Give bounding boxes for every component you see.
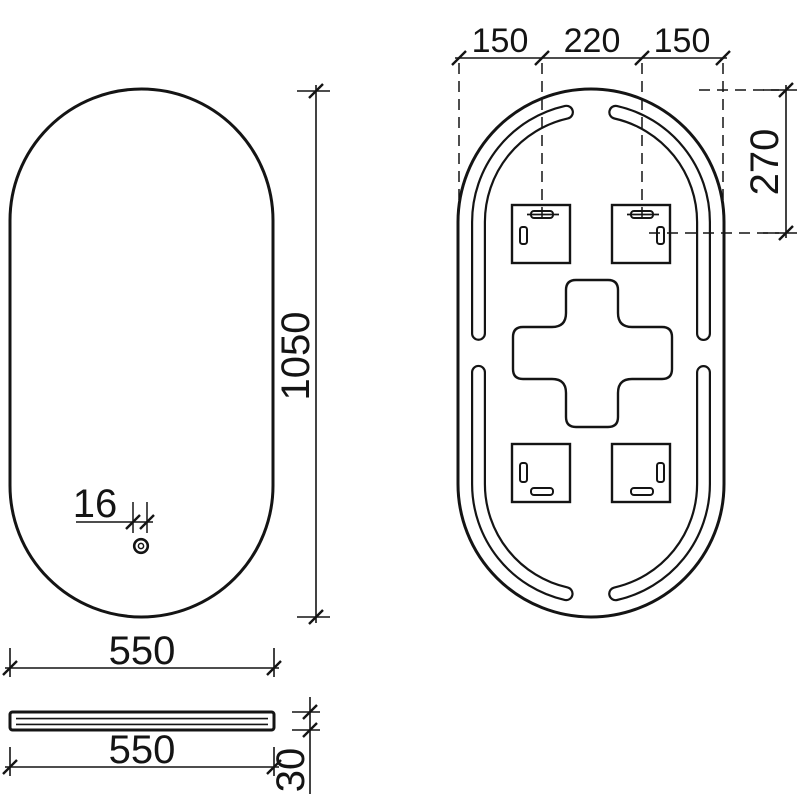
front-view: 1050 16 550: [3, 84, 330, 677]
dim-side-thickness-label: 30: [269, 748, 313, 793]
mount-bracket-top-left: [512, 205, 570, 263]
dimension-back-top-chain: 150 220 150: [452, 22, 730, 223]
cross-cutout: [513, 280, 672, 427]
front-view-outline: [10, 89, 273, 617]
dim-back-center-label: 220: [564, 22, 621, 60]
dim-back-offset-label: 270: [743, 129, 787, 196]
dimension-side-thickness: 30: [269, 697, 320, 794]
touch-sensor-outer-ring: [134, 539, 148, 553]
mount-bracket-bottom-left: [512, 444, 570, 502]
dim-sensor-label: 16: [73, 482, 118, 526]
dim-back-left-label: 150: [472, 22, 529, 60]
side-slot: [520, 227, 527, 244]
side-view: 550 30: [3, 697, 320, 794]
dim-back-right-label: 150: [654, 22, 711, 60]
dimension-front-width: 550: [3, 629, 281, 677]
dim-side-width-label: 550: [109, 728, 176, 772]
keyhole-slot: [531, 488, 553, 495]
mirror-technical-drawing: 1050 16 550: [0, 0, 800, 800]
dimension-front-height: 1050: [274, 84, 330, 624]
mount-bracket-top-right: [612, 205, 670, 263]
dim-front-height-label: 1050: [274, 312, 318, 401]
keyhole-slot: [631, 488, 653, 495]
dimension-sensor: 16: [73, 482, 154, 533]
side-slot: [657, 463, 664, 482]
touch-sensor-inner-dot: [138, 543, 143, 548]
side-slot: [520, 463, 527, 482]
dim-front-width-label: 550: [109, 629, 176, 673]
dimension-side-width: 550: [3, 728, 281, 776]
mount-bracket-bottom-right: [612, 444, 670, 502]
drawing-canvas: 1050 16 550: [0, 0, 800, 800]
touch-sensor-icon: [134, 539, 148, 553]
side-slot: [657, 227, 664, 244]
back-view: 150 220 150 270: [452, 22, 797, 617]
